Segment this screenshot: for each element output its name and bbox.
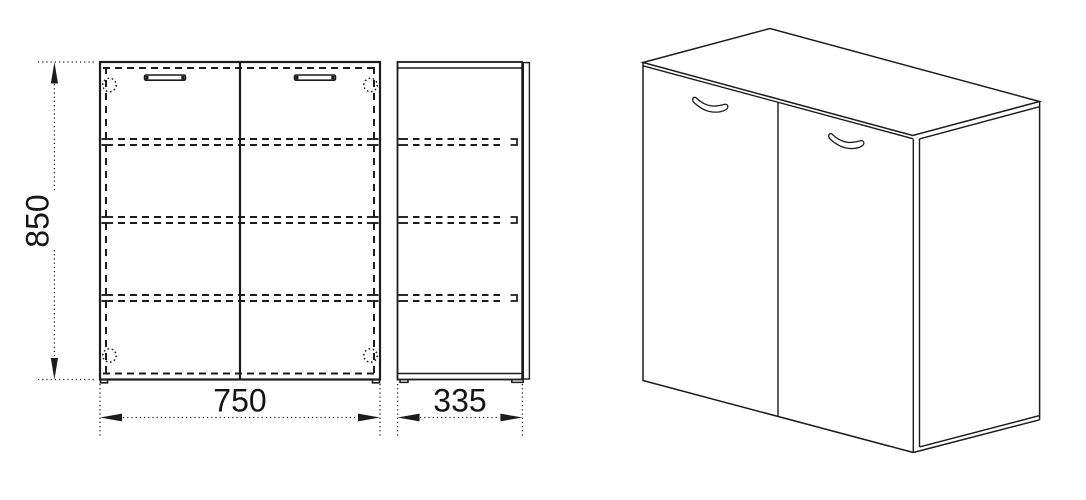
svg-text:750: 750 xyxy=(213,383,266,419)
svg-text:850: 850 xyxy=(20,194,56,247)
svg-text:335: 335 xyxy=(433,383,486,419)
